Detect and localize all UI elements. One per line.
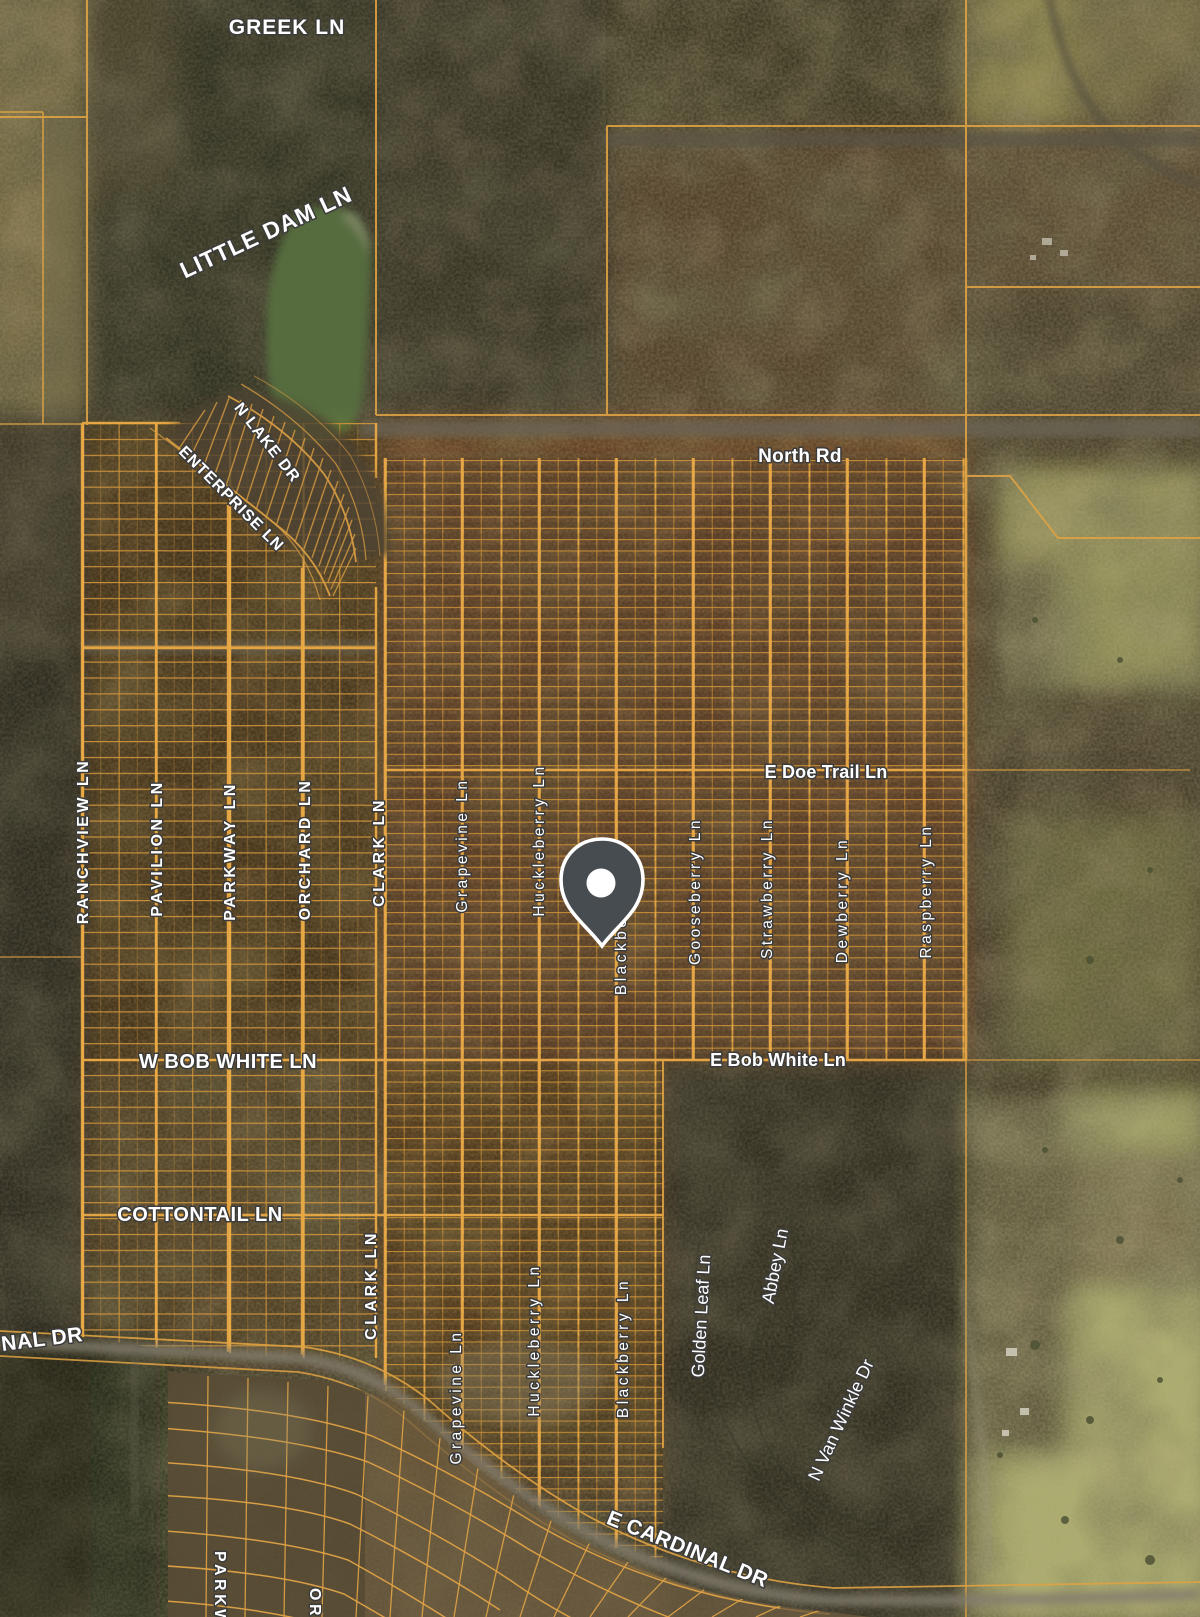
svg-text:W BOB WHITE LN: W BOB WHITE LN [139, 1051, 317, 1073]
svg-text:Blackberry Ln: Blackberry Ln [615, 1278, 632, 1418]
svg-text:ORCHARD LN: ORCHARD LN [297, 778, 314, 921]
svg-text:PARKWAY LN: PARKWAY LN [211, 1551, 228, 1617]
svg-text:PAVILION LN: PAVILION LN [149, 779, 166, 916]
svg-text:COTTONTAIL LN: COTTONTAIL LN [117, 1204, 282, 1226]
svg-text:Strawberry Ln: Strawberry Ln [759, 817, 776, 959]
svg-text:PARKWAY LN: PARKWAY LN [222, 781, 239, 921]
svg-text:Dewberry Ln: Dewberry Ln [834, 837, 851, 963]
svg-text:North Rd: North Rd [758, 446, 842, 467]
svg-text:Gooseberry Ln: Gooseberry Ln [687, 817, 704, 965]
svg-text:RANCHVIEW LN: RANCHVIEW LN [75, 758, 92, 924]
svg-text:Huckleberry Ln: Huckleberry Ln [526, 1263, 543, 1416]
svg-text:GREEK LN: GREEK LN [229, 16, 346, 39]
svg-text:ORCHARD LN: ORCHARD LN [306, 1588, 323, 1617]
svg-text:E Doe Trail Ln: E Doe Trail Ln [765, 762, 888, 782]
svg-text:E Bob White Ln: E Bob White Ln [710, 1050, 846, 1070]
svg-text:CLARK LN: CLARK LN [371, 797, 388, 907]
svg-text:Grapevine Ln: Grapevine Ln [454, 777, 471, 912]
svg-text:Grapevine Ln: Grapevine Ln [448, 1329, 465, 1464]
svg-text:Raspberry Ln: Raspberry Ln [918, 823, 935, 958]
svg-text:Huckleberry Ln: Huckleberry Ln [531, 763, 548, 916]
svg-text:CLARK LN: CLARK LN [363, 1230, 380, 1340]
